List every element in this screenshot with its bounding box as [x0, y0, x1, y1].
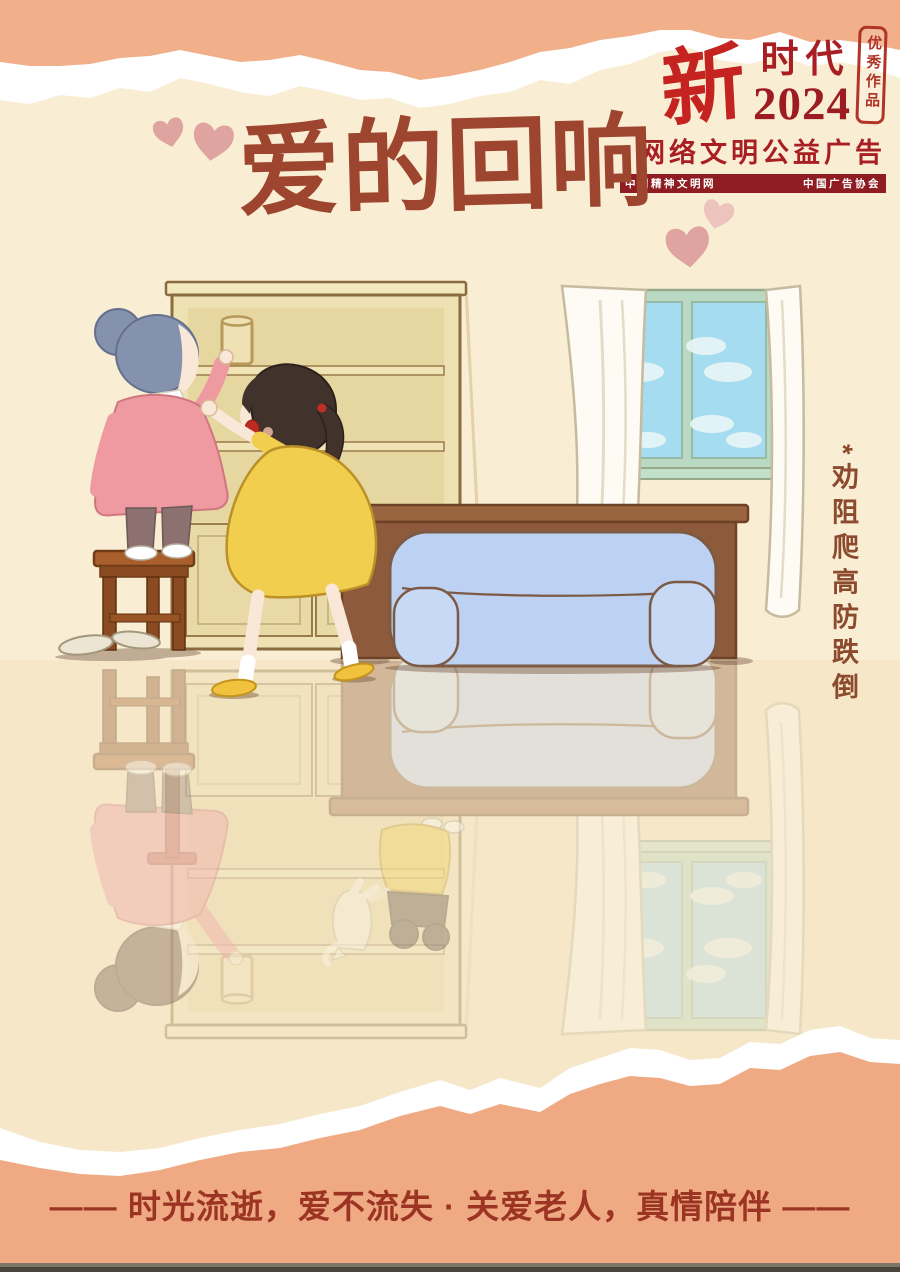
heart-icon [700, 198, 736, 233]
bottom-edge-strip-dark [0, 1267, 900, 1272]
org-right-label: 中国广告协会 [803, 176, 881, 191]
badge-brand-word: 时代 [760, 41, 850, 79]
badge-seal: 优秀作品 [855, 26, 887, 125]
slogan: —— 时光流逝，爱不流失 · 关爱老人，真情陪伴 —— [0, 1180, 900, 1228]
heart-icon [151, 116, 187, 150]
side-note: *劝阻爬高防跌倒 [829, 444, 856, 708]
poster-title: 爱的回响 [237, 106, 700, 230]
heart-icon [665, 225, 712, 269]
sofa [390, 532, 716, 666]
heart-icon [190, 121, 235, 163]
badge-brand-column: 时代 2024 [753, 41, 851, 128]
badge-year: 2024 [753, 81, 851, 128]
psa-poster: 新 时代 2024 优秀作品 网络文明公益广告 中国精神文明网 中国广告协会 爱… [0, 0, 900, 1272]
